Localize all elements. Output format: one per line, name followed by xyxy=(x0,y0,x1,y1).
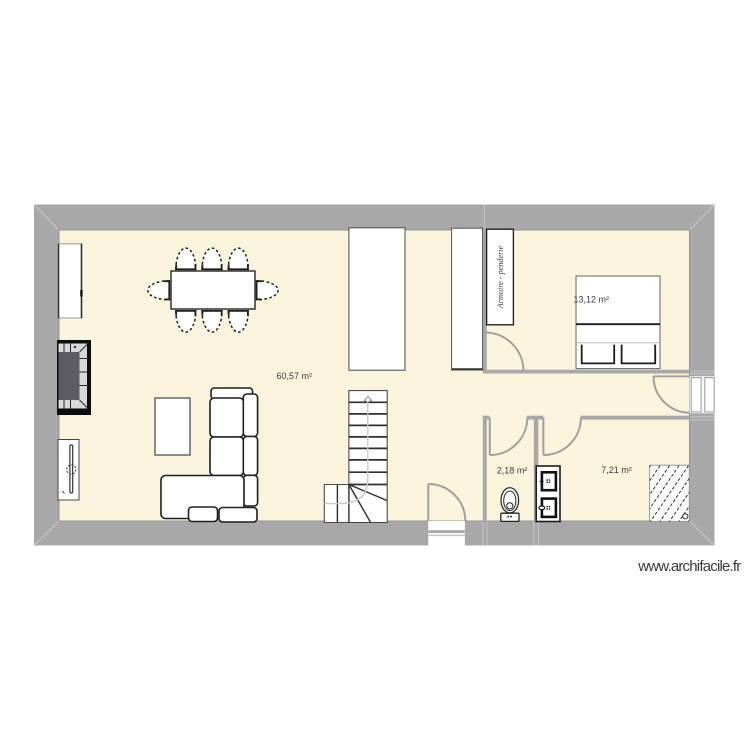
svg-text:13,12 m²: 13,12 m² xyxy=(574,295,610,305)
svg-text:7,21 m²: 7,21 m² xyxy=(601,465,632,475)
svg-text:60,57 m²: 60,57 m² xyxy=(277,371,313,381)
svg-text:2,18 m²: 2,18 m² xyxy=(497,466,528,476)
svg-text:www.archifacile.fr: www.archifacile.fr xyxy=(637,558,741,575)
svg-text:Armoire - penderie: Armoire - penderie xyxy=(496,245,505,309)
